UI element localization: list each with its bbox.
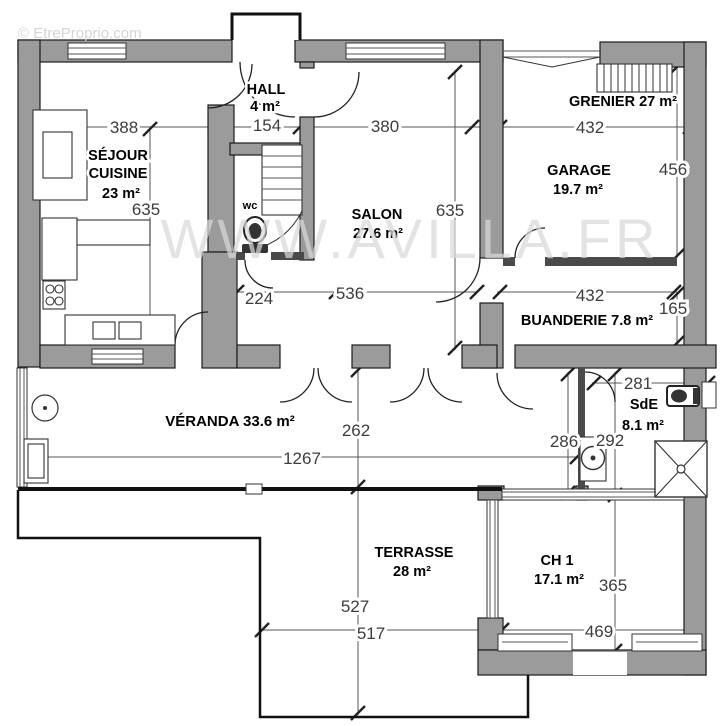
stove-icon bbox=[43, 281, 65, 309]
dim-ch1-width: 469 bbox=[585, 622, 613, 641]
room-label-grenier: GRENIER 27 m² bbox=[569, 94, 677, 110]
room-area-garage: 19.7 m² bbox=[553, 182, 603, 198]
dim-buanderie-depth: 165 bbox=[659, 299, 687, 318]
entrance-porch bbox=[232, 14, 300, 40]
dim-terrasse-width: 517 bbox=[357, 624, 385, 643]
room-label-veranda: VÉRANDA 33.6 m² bbox=[165, 413, 294, 430]
room-area-ch1: 17.1 m² bbox=[534, 572, 584, 588]
veranda-planter bbox=[24, 439, 48, 483]
room-label-garage: GARAGE bbox=[547, 163, 611, 179]
dim-sejour-width: 388 bbox=[110, 118, 138, 137]
kitchen-sink bbox=[119, 322, 141, 339]
dim-hall-width: 154 bbox=[253, 116, 281, 135]
dim-corridor: 224 bbox=[245, 289, 273, 308]
shower-icon bbox=[655, 441, 707, 497]
dim-buanderie-width: 432 bbox=[576, 286, 604, 305]
watermark-avilla: WWW.AVILLA.FR bbox=[161, 207, 660, 270]
room-label-sde: SdE bbox=[630, 397, 659, 413]
dim-sde-width: 281 bbox=[624, 374, 652, 393]
kitchen-sink bbox=[93, 322, 115, 339]
watermark-etreproprio: © EtreProprio.com bbox=[18, 25, 142, 42]
room-area-terrasse: 28 m² bbox=[393, 564, 431, 580]
dim-garage-width: 432 bbox=[576, 118, 604, 137]
dim-ch1-depth: 365 bbox=[599, 576, 627, 595]
room-area-sejour: 23 m² bbox=[102, 186, 140, 202]
sofa bbox=[33, 110, 87, 200]
veranda-table-icon bbox=[32, 395, 58, 421]
grenier-ladder bbox=[597, 64, 672, 92]
room-label-terrasse: TERRASSE bbox=[375, 545, 454, 561]
dim-passage-depth: 286 bbox=[550, 432, 578, 451]
room-area-hall: 4 m² bbox=[250, 99, 280, 115]
dim-salon-lower: 536 bbox=[336, 284, 364, 303]
room-label-cuisine: CUISINE bbox=[89, 166, 148, 182]
room-label-buanderie: BUANDERIE 7.8 m² bbox=[521, 313, 653, 329]
room-area-sde: 8.1 m² bbox=[622, 418, 664, 434]
dim-garage-depth: 456 bbox=[659, 160, 687, 179]
dim-terrasse-depth: 527 bbox=[341, 597, 369, 616]
floor-plan-page: 388 154 380 432 635 635 456 224 536 432 … bbox=[0, 0, 726, 726]
floor-plan-image: 388 154 380 432 635 635 456 224 536 432 … bbox=[0, 0, 726, 726]
dim-veranda-width: 1267 bbox=[283, 449, 321, 468]
room-label-sejour: SÉJOUR bbox=[88, 147, 148, 164]
veranda-door-handle bbox=[246, 484, 262, 494]
room-label-hall: HALL bbox=[247, 82, 286, 98]
dim-sde-depth: 292 bbox=[596, 431, 624, 450]
dim-sejour-depth: 635 bbox=[132, 200, 160, 219]
sde-toilet-icon bbox=[667, 386, 699, 406]
dim-veranda-depth: 262 bbox=[342, 421, 370, 440]
dim-salon-width: 380 bbox=[371, 117, 399, 136]
room-label-ch1: CH 1 bbox=[540, 553, 573, 569]
